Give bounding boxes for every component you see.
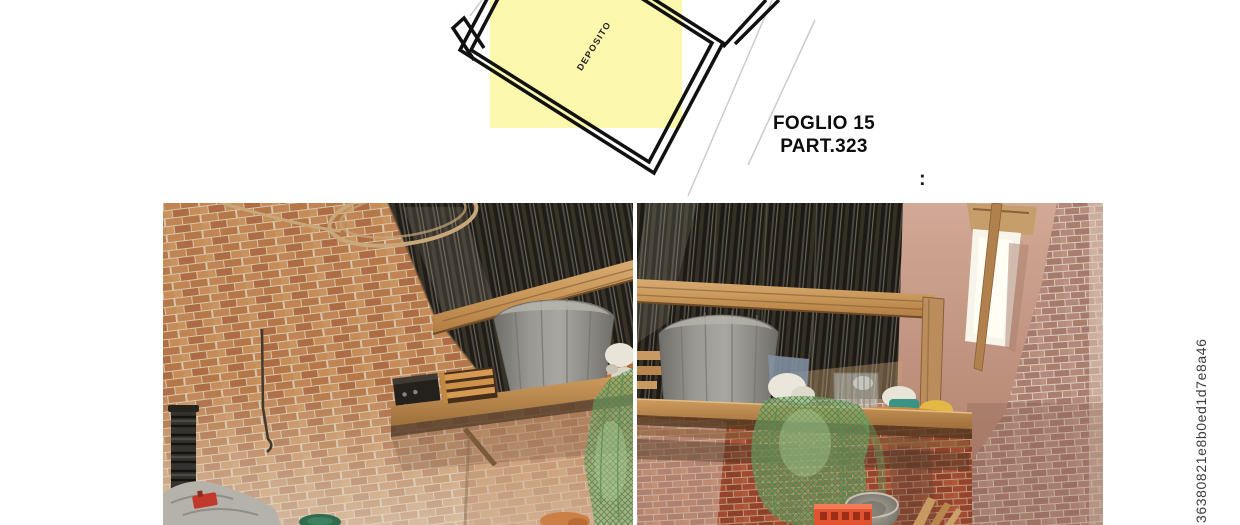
photo-right <box>637 203 1103 525</box>
wall-shading <box>967 403 1103 525</box>
photo-left <box>163 203 633 525</box>
document-page: DEPOSITO FOGLIO 15 PART.323 : <box>0 0 1240 525</box>
caption-particella: PART.323 <box>744 135 904 158</box>
caption-block: FOGLIO 15 PART.323 <box>744 112 904 158</box>
orange-crate <box>814 504 872 525</box>
black-radio-box <box>393 373 441 405</box>
watermark-code: 36380821e8b0ed1d7e8a46 <box>1193 339 1209 524</box>
caption-foglio: FOGLIO 15 <box>744 112 904 135</box>
cadastral-plan: DEPOSITO <box>430 0 830 196</box>
wood-post <box>920 297 944 415</box>
separator-colon: : <box>919 168 926 191</box>
grey-vat <box>659 311 778 413</box>
